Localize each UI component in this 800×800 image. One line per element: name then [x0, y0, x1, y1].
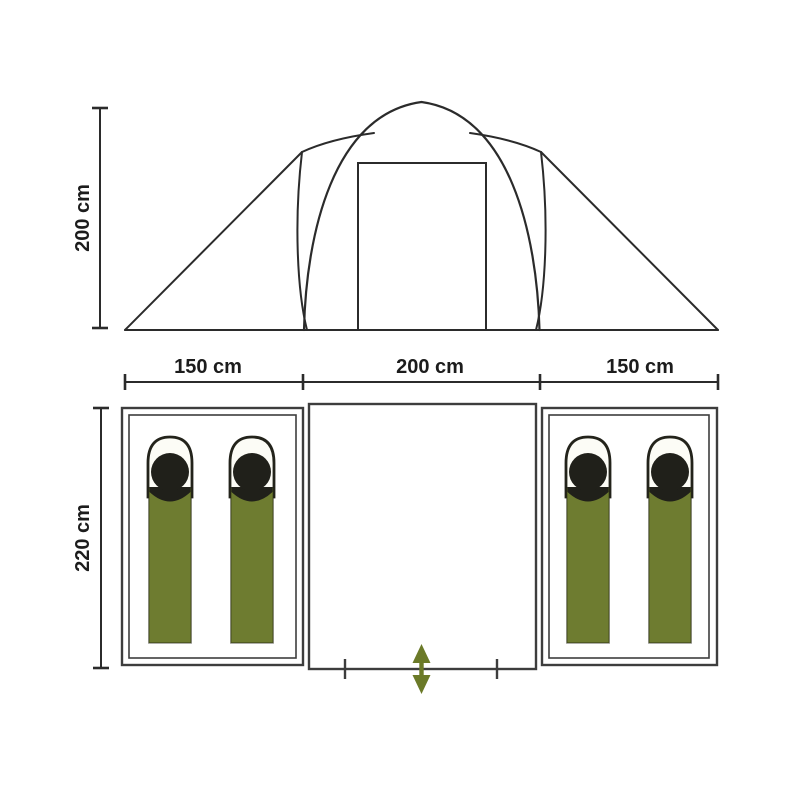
depth-dimension-220: 220 cm — [72, 408, 109, 668]
sleeping-bag — [648, 437, 692, 643]
tent-door — [358, 163, 486, 330]
height-dimension-label: 200 cm — [72, 184, 94, 252]
width-label-left: 150 cm — [174, 356, 242, 378]
vestibule-wall — [309, 404, 536, 669]
left-bedroom — [122, 408, 303, 665]
right-slope-line — [541, 152, 718, 330]
tent-dimensions-diagram: 200 cm 150 cm 200 cm 1 — [0, 0, 800, 800]
left-slope-line — [125, 152, 302, 330]
sleeping-bag — [566, 437, 610, 643]
depth-dimension-label: 220 cm — [72, 504, 94, 572]
height-dimension-200: 200 cm — [72, 108, 108, 328]
floor-plan-view: 150 cm 200 cm 150 cm 220 cm — [72, 356, 718, 694]
right-bedroom — [542, 408, 717, 665]
width-label-right: 150 cm — [606, 356, 674, 378]
width-label-center: 200 cm — [396, 356, 464, 378]
width-dimension-line: 150 cm 200 cm 150 cm — [125, 356, 718, 390]
side-elevation-view: 200 cm — [72, 102, 718, 330]
center-vestibule — [309, 404, 536, 694]
sleeping-bag — [230, 437, 274, 643]
right-ridge-line — [470, 133, 541, 152]
left-ridge-line — [302, 133, 374, 152]
sleeping-bag — [148, 437, 192, 643]
diagram-canvas: 200 cm 150 cm 200 cm 1 — [0, 0, 800, 800]
